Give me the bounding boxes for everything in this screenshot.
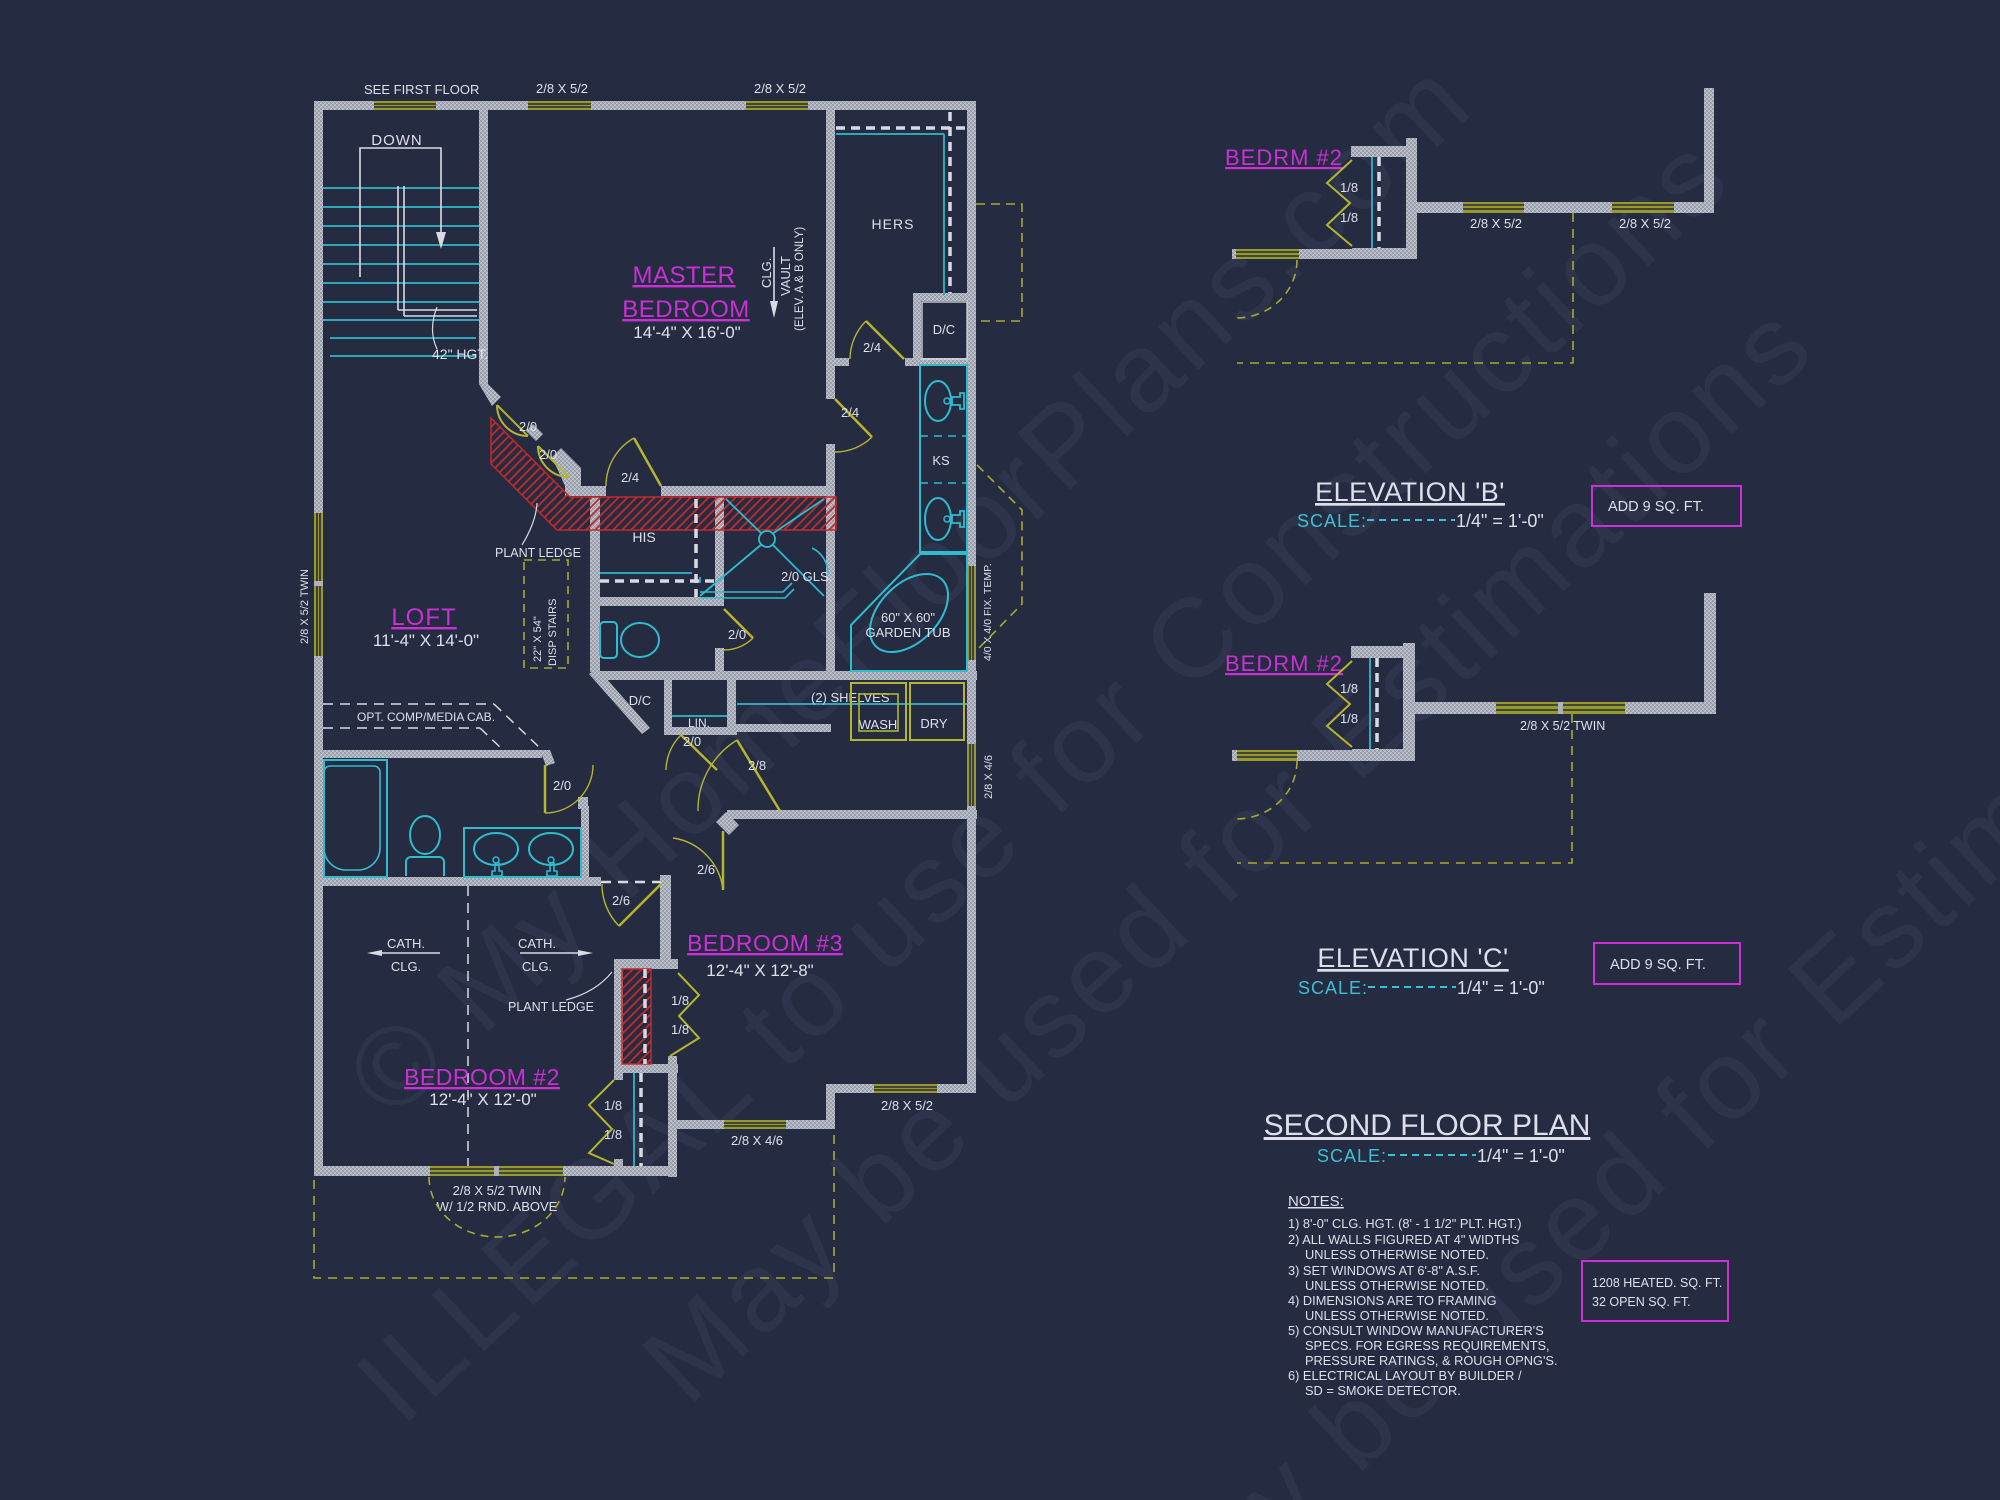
svg-text:ELEVATION 'B': ELEVATION 'B' (1315, 477, 1505, 507)
svg-text:SPECS. FOR EGRESS REQUIREMENTS: SPECS. FOR EGRESS REQUIREMENTS, (1305, 1338, 1550, 1353)
svg-text:BEDRM #2: BEDRM #2 (1225, 145, 1343, 170)
svg-text:2) ALL WALLS FIGURED AT 4" WI: 2) ALL WALLS FIGURED AT 4" WIDTHS (1288, 1232, 1519, 1247)
svg-text:4) DIMENSIONS ARE TO FRAMING: 4) DIMENSIONS ARE TO FRAMING (1288, 1293, 1497, 1308)
svg-text:1/4" = 1'-0": 1/4" = 1'-0" (1456, 511, 1544, 531)
svg-text:GARDEN TUB: GARDEN TUB (866, 625, 951, 640)
svg-text:12'-4" X 12'-0": 12'-4" X 12'-0" (429, 1090, 536, 1109)
svg-text:1/8: 1/8 (1340, 210, 1358, 225)
svg-text:2/8 X 5/2: 2/8 X 5/2 (1619, 216, 1671, 231)
svg-text:1/8: 1/8 (671, 993, 689, 1008)
svg-text:CATH.: CATH. (518, 936, 556, 951)
svg-text:2/4: 2/4 (841, 405, 859, 420)
svg-text:WASH: WASH (859, 717, 898, 732)
svg-text:1) 8'-0" CLG. HGT. (8' - 1 1/: 1) 8'-0" CLG. HGT. (8' - 1 1/2" PLT. HGT… (1288, 1216, 1521, 1231)
svg-text:2/8 X 5/2 TWIN: 2/8 X 5/2 TWIN (1520, 719, 1605, 733)
svg-text:CATH.: CATH. (387, 936, 425, 951)
svg-text:BEDRM #2: BEDRM #2 (1225, 651, 1343, 676)
svg-text:12'-4" X 12'-8": 12'-4" X 12'-8" (706, 961, 813, 980)
svg-text:42" HGT.: 42" HGT. (432, 346, 488, 362)
svg-text:2/8: 2/8 (748, 758, 766, 773)
svg-text:2/8 X 4/6: 2/8 X 4/6 (731, 1133, 783, 1148)
svg-text:D/C: D/C (933, 322, 955, 337)
svg-text:KS: KS (932, 453, 950, 468)
svg-text:2/6: 2/6 (697, 862, 715, 877)
svg-text:1/8: 1/8 (1340, 180, 1358, 195)
svg-text:1/8: 1/8 (604, 1127, 622, 1142)
svg-text:LIN.: LIN. (688, 716, 710, 730)
svg-text:SEE FIRST FLOOR: SEE FIRST FLOOR (364, 82, 479, 97)
svg-text:SCALE:: SCALE: (1297, 511, 1367, 531)
svg-text:ELEVATION 'C': ELEVATION 'C' (1317, 943, 1508, 973)
svg-text:DOWN: DOWN (371, 132, 423, 149)
svg-text:2/0: 2/0 (553, 778, 571, 793)
svg-text:HERS: HERS (872, 216, 915, 232)
svg-text:D/C: D/C (629, 693, 651, 708)
svg-text:1208 HEATED. SQ. FT.: 1208 HEATED. SQ. FT. (1592, 1276, 1722, 1290)
svg-text:1/4" = 1'-0": 1/4" = 1'-0" (1477, 1146, 1565, 1166)
svg-text:(ELEV. A & B ONLY): (ELEV. A & B ONLY) (794, 227, 806, 331)
svg-text:2/8 X 5/2 TWIN: 2/8 X 5/2 TWIN (299, 569, 311, 644)
svg-text:PLANT LEDGE: PLANT LEDGE (495, 546, 581, 560)
svg-text:HIS: HIS (632, 529, 655, 545)
svg-text:2/0 GLS.: 2/0 GLS. (781, 569, 832, 584)
svg-text:2/0: 2/0 (683, 734, 701, 749)
svg-text:2/0: 2/0 (539, 447, 557, 462)
svg-text:2/8 X 5/2: 2/8 X 5/2 (754, 81, 806, 96)
svg-text:SCALE:: SCALE: (1298, 978, 1368, 998)
svg-text:2/8 X 5/2: 2/8 X 5/2 (536, 81, 588, 96)
svg-text:2/8 X 4/6: 2/8 X 4/6 (983, 755, 995, 799)
svg-text:VAULT: VAULT (778, 256, 793, 296)
svg-text:2/0: 2/0 (728, 627, 746, 642)
svg-text:1/4" = 1'-0": 1/4" = 1'-0" (1457, 978, 1545, 998)
svg-text:4/0 X 4/0 FIX. TEMP.: 4/0 X 4/0 FIX. TEMP. (982, 563, 994, 661)
svg-text:ADD 9 SQ. FT.: ADD 9 SQ. FT. (1608, 499, 1704, 515)
svg-text:SCALE:: SCALE: (1317, 1146, 1387, 1166)
svg-text:3) SET WINDOWS AT 6'-8" A.S.F.: 3) SET WINDOWS AT 6'-8" A.S.F. (1288, 1263, 1480, 1278)
svg-text:ADD 9 SQ. FT.: ADD 9 SQ. FT. (1610, 957, 1706, 973)
svg-text:W/ 1/2 RND. ABOVE: W/ 1/2 RND. ABOVE (437, 1199, 558, 1214)
svg-text:1/8: 1/8 (1340, 711, 1358, 726)
svg-text:CLG.: CLG. (522, 959, 552, 974)
svg-text:UNLESS OTHERWISE NOTED.: UNLESS OTHERWISE NOTED. (1305, 1247, 1489, 1262)
svg-text:2/4: 2/4 (621, 470, 639, 485)
svg-text:CLG.: CLG. (391, 959, 421, 974)
svg-text:OPT. COMP/MEDIA CAB.: OPT. COMP/MEDIA CAB. (357, 710, 495, 724)
svg-text:PRESSURE RATINGS, & ROUGH OPNG: PRESSURE RATINGS, & ROUGH OPNG'S. (1305, 1353, 1558, 1368)
svg-text:MASTER: MASTER (632, 262, 735, 289)
svg-text:1/8: 1/8 (671, 1022, 689, 1037)
svg-text:2/0: 2/0 (519, 419, 537, 434)
svg-text:2/8 X 5/2 TWIN: 2/8 X 5/2 TWIN (453, 1183, 542, 1198)
svg-text:2/6: 2/6 (612, 893, 630, 908)
svg-text:32 OPEN SQ. FT.: 32 OPEN SQ. FT. (1592, 1295, 1691, 1309)
svg-text:22" X 54": 22" X 54" (532, 616, 544, 662)
svg-text:PLANT LEDGE: PLANT LEDGE (508, 1000, 594, 1014)
svg-text:2/4: 2/4 (863, 340, 881, 355)
svg-text:11'-4" X 14'-0": 11'-4" X 14'-0" (373, 631, 479, 650)
svg-text:6) ELECTRICAL LAYOUT BY BUILDE: 6) ELECTRICAL LAYOUT BY BUILDER / (1288, 1368, 1522, 1383)
svg-text:SECOND FLOOR PLAN: SECOND FLOOR PLAN (1264, 1109, 1591, 1142)
svg-text:UNLESS OTHERWISE NOTED.: UNLESS OTHERWISE NOTED. (1305, 1308, 1489, 1323)
svg-text:5) CONSULT WINDOW MANUFACTURER: 5) CONSULT WINDOW MANUFACTURER'S (1288, 1323, 1544, 1338)
svg-text:2/8 X 5/2: 2/8 X 5/2 (1470, 216, 1522, 231)
svg-text:NOTES:: NOTES: (1288, 1193, 1344, 1210)
svg-text:DRY: DRY (920, 716, 948, 731)
svg-text:60" X 60": 60" X 60" (881, 610, 935, 625)
svg-text:LOFT: LOFT (391, 604, 456, 631)
svg-text:1/8: 1/8 (604, 1098, 622, 1113)
svg-text:BEDROOM #3: BEDROOM #3 (687, 930, 843, 956)
svg-text:14'-4" X 16'-0": 14'-4" X 16'-0" (633, 323, 740, 342)
svg-text:CLG.: CLG. (759, 258, 774, 288)
svg-text:BEDROOM #2: BEDROOM #2 (404, 1064, 560, 1090)
svg-text:2/8 X 5/2: 2/8 X 5/2 (881, 1098, 933, 1113)
svg-text:UNLESS OTHERWISE NOTED.: UNLESS OTHERWISE NOTED. (1305, 1278, 1489, 1293)
svg-text:SD = SMOKE DETECTOR.: SD = SMOKE DETECTOR. (1305, 1383, 1461, 1398)
svg-text:DISP STAIRS: DISP STAIRS (547, 599, 559, 666)
svg-text:1/8: 1/8 (1340, 681, 1358, 696)
svg-text:BEDROOM: BEDROOM (622, 296, 750, 323)
